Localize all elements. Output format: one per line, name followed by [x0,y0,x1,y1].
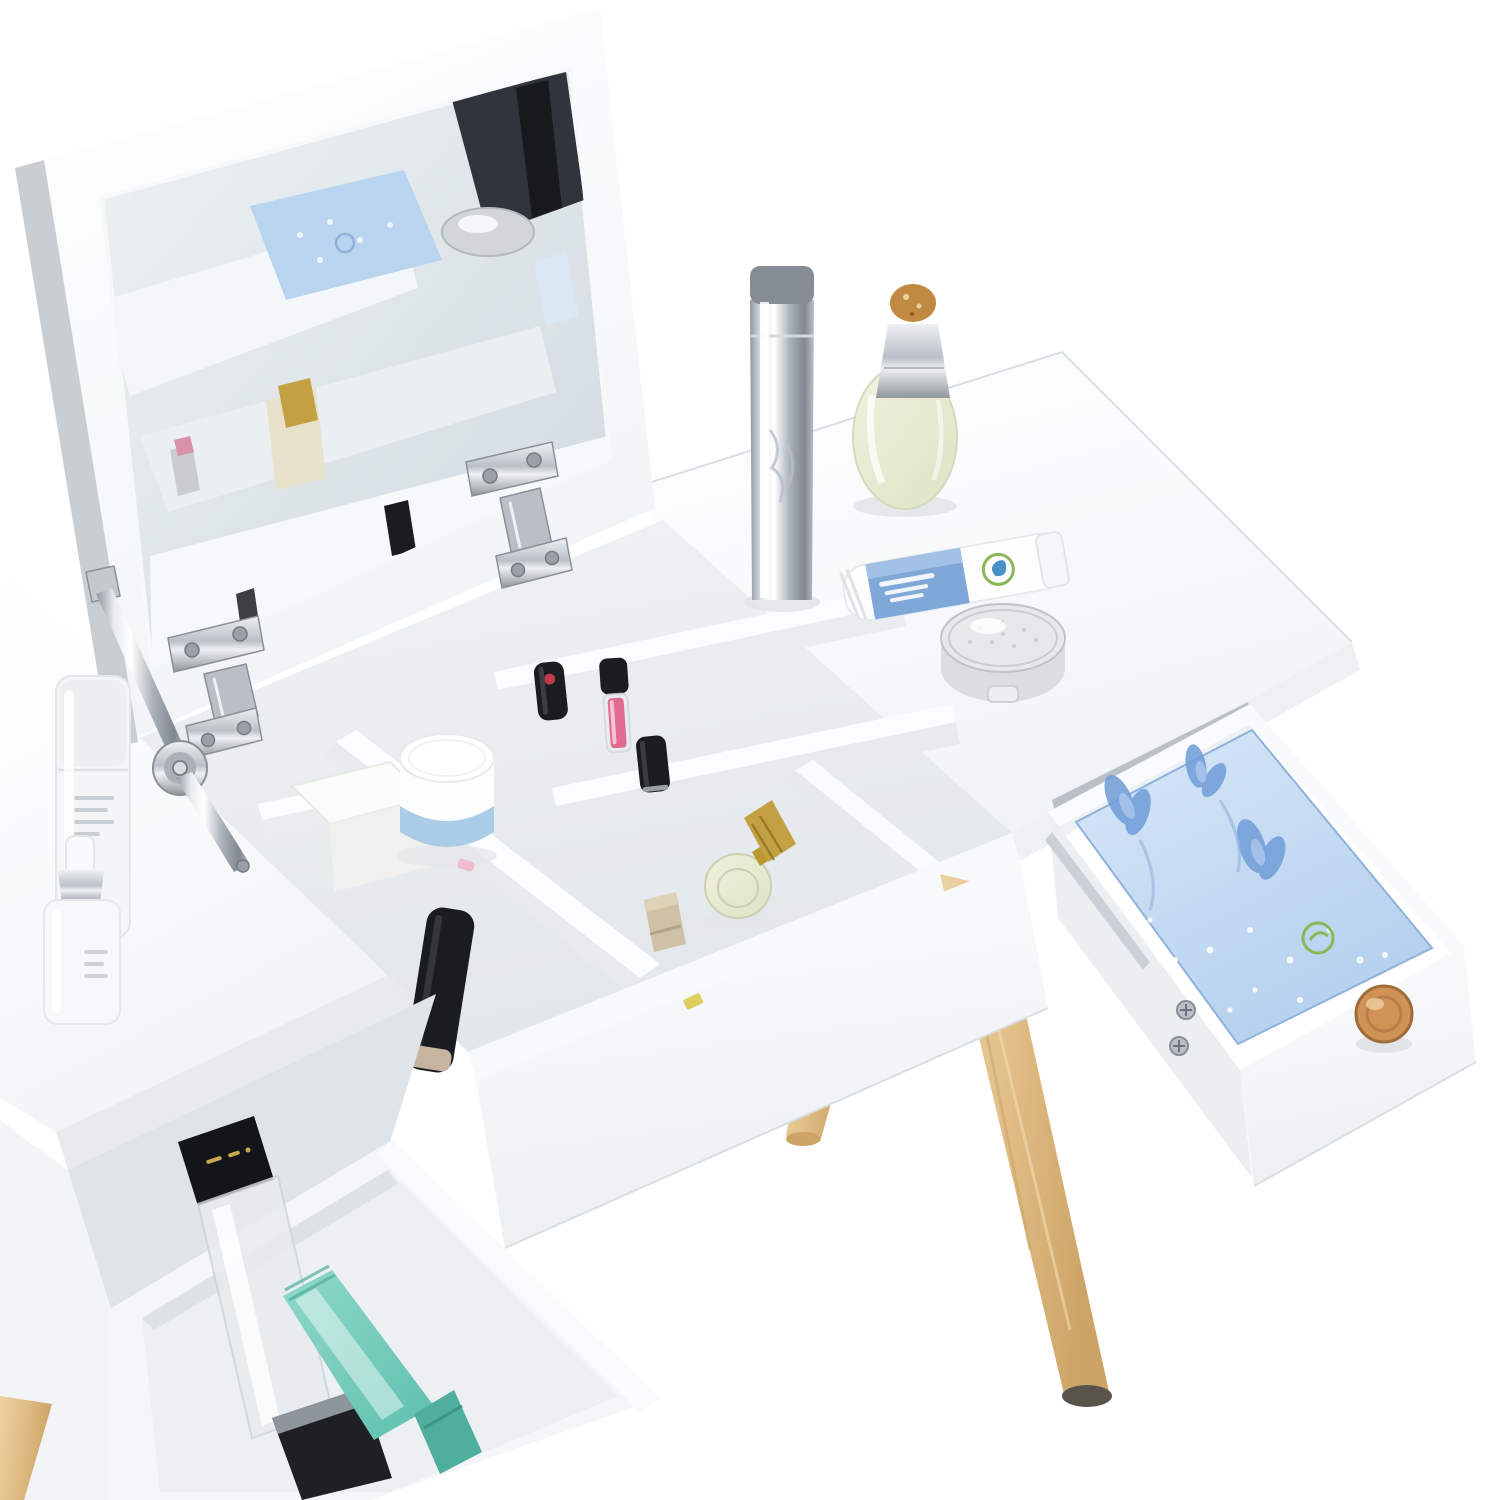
compact-lid [941,604,1065,672]
cushion-compact [941,604,1065,702]
stopper-speckle [910,312,914,316]
hinge-screw [512,564,525,577]
perfume-amber-stopper [890,284,936,322]
hinge-screw [238,722,251,735]
black-lipstick [635,735,671,794]
knob-highlight [1366,998,1384,1010]
reflection-compact-shine [458,215,498,233]
jar-shadow [397,845,497,867]
stopper-sparkle [903,294,909,300]
gloss-black-cap [599,657,629,695]
reflection-compact [442,208,534,256]
compact-clasp [988,686,1018,702]
stopper-sparkle [917,304,922,309]
silver-spray-bottle [744,266,820,612]
hinge-screw [185,643,199,657]
hinge-screw [483,469,497,483]
pump-silver-collar [58,870,104,904]
spray-grey-cap [750,266,814,304]
cream-jar [397,734,497,872]
left-tabletop-items [44,676,130,1024]
hinge-screw [546,552,559,565]
jar-lid [400,734,494,782]
lipstick-red-dot [533,661,569,722]
drawer-knob[interactable] [1356,986,1412,1053]
pivot-cap [173,761,187,775]
arm-anchor-screw [237,860,249,872]
product-photo-stage [0,0,1500,1500]
hinge-screw [202,734,215,747]
hinge-screw [527,453,541,467]
hinge-screw [233,627,247,641]
spray-highlight [760,302,769,598]
bottle-shine [52,910,61,1014]
compact-shine [970,618,1006,634]
leg-foot-cap [1062,1385,1112,1407]
perfume-silver-neck [876,324,950,398]
vanity-photo-svg [0,0,1500,1500]
